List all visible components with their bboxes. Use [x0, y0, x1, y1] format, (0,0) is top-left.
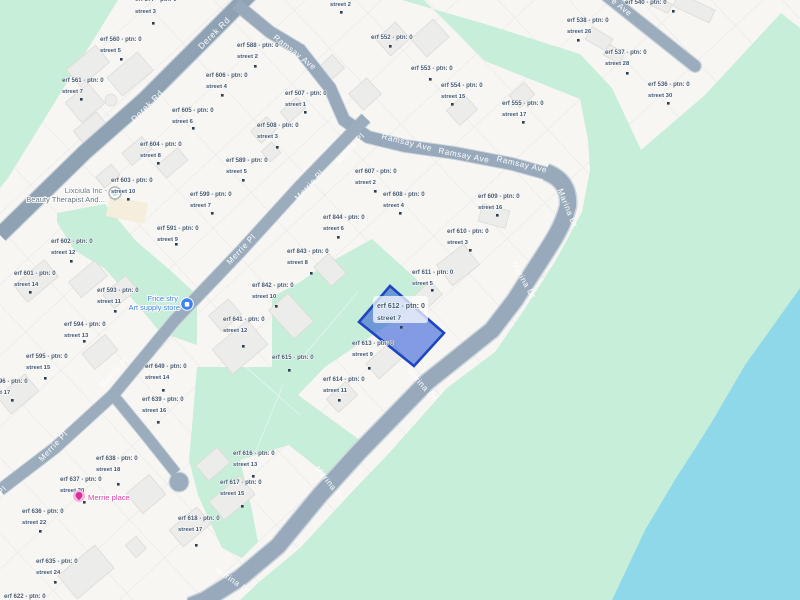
- svg-text:street 24: street 24: [36, 570, 61, 576]
- svg-text:street 9: street 9: [352, 352, 374, 358]
- svg-text:street 16: street 16: [142, 408, 167, 414]
- svg-text:erf 635 - ptn: 0: erf 635 - ptn: 0: [36, 558, 78, 565]
- svg-text:Lixciula Inc -: Lixciula Inc -: [65, 186, 108, 195]
- svg-text:erf 507 - ptn: 0: erf 507 - ptn: 0: [285, 90, 327, 97]
- svg-text:street 10: street 10: [252, 294, 277, 300]
- svg-text:erf 844 - ptn: 0: erf 844 - ptn: 0: [323, 214, 365, 221]
- svg-text:erf 614 - ptn: 0: erf 614 - ptn: 0: [323, 376, 365, 383]
- svg-text:street 12: street 12: [223, 328, 248, 334]
- svg-text:erf 603 - ptn: 0: erf 603 - ptn: 0: [111, 177, 153, 184]
- svg-text:erf 604 - ptn: 0: erf 604 - ptn: 0: [140, 141, 182, 148]
- svg-text:erf 593 - ptn: 0: erf 593 - ptn: 0: [97, 287, 139, 294]
- svg-text:erf 616 - ptn: 0: erf 616 - ptn: 0: [233, 450, 275, 457]
- svg-text:erf 612 - ptn: 0: erf 612 - ptn: 0: [377, 303, 425, 310]
- svg-text:street 8: street 8: [140, 153, 162, 159]
- svg-text:erf 611 - ptn: 0: erf 611 - ptn: 0: [412, 269, 454, 276]
- svg-text:street 5: street 5: [100, 48, 122, 54]
- svg-text:street 15: street 15: [26, 365, 51, 371]
- svg-text:erf 613 - ptn: 0: erf 613 - ptn: 0: [352, 340, 394, 347]
- svg-text:street 14: street 14: [14, 282, 39, 288]
- svg-text:erf 610 - ptn: 0: erf 610 - ptn: 0: [447, 228, 489, 235]
- svg-text:street 16: street 16: [478, 205, 503, 211]
- svg-text:street 11: street 11: [323, 388, 348, 394]
- svg-text:erf 602 - ptn: 0: erf 602 - ptn: 0: [51, 238, 93, 245]
- svg-text:street 18: street 18: [96, 467, 121, 473]
- svg-text:erf 560 - ptn: 0: erf 560 - ptn: 0: [100, 36, 142, 43]
- svg-text:street 11: street 11: [97, 299, 122, 305]
- svg-text:street 5: street 5: [412, 281, 434, 287]
- svg-text:erf 594 - ptn: 0: erf 594 - ptn: 0: [64, 321, 106, 328]
- svg-text:street 6: street 6: [323, 226, 345, 232]
- svg-text:erf 540 - ptn: 0: erf 540 - ptn: 0: [625, 0, 667, 6]
- svg-text:erf 588 - ptn: 0: erf 588 - ptn: 0: [237, 42, 279, 49]
- svg-text:erf 553 - ptn: 0: erf 553 - ptn: 0: [411, 65, 453, 72]
- svg-text:street 10: street 10: [111, 189, 136, 195]
- svg-text:Beauty Therapist And...: Beauty Therapist And...: [26, 195, 105, 204]
- svg-text:erf 842 - ptn: 0: erf 842 - ptn: 0: [252, 282, 294, 289]
- svg-text:street 8: street 8: [287, 260, 309, 266]
- svg-text:street 7: street 7: [62, 89, 84, 95]
- svg-text:erf 599 - ptn: 0: erf 599 - ptn: 0: [190, 191, 232, 198]
- svg-text:street 4: street 4: [206, 84, 228, 90]
- svg-text:street 13: street 13: [233, 462, 258, 468]
- svg-text:street 30: street 30: [648, 93, 673, 99]
- svg-text:street 9: street 9: [157, 237, 179, 243]
- svg-text:erf 615 - ptn: 0: erf 615 - ptn: 0: [272, 354, 314, 361]
- svg-text:erf 554 - ptn: 0: erf 554 - ptn: 0: [441, 82, 483, 89]
- svg-text:erf 637 - ptn: 0: erf 637 - ptn: 0: [60, 476, 102, 483]
- svg-text:street 14: street 14: [145, 375, 170, 381]
- svg-text:street 2: street 2: [355, 180, 377, 186]
- svg-text:street 28: street 28: [605, 61, 630, 67]
- svg-text:erf 649 - ptn: 0: erf 649 - ptn: 0: [145, 363, 187, 370]
- svg-text:erf 636 - ptn: 0: erf 636 - ptn: 0: [22, 508, 64, 515]
- svg-text:erf 638 - ptn: 0: erf 638 - ptn: 0: [96, 455, 138, 462]
- svg-text:erf 552 - ptn: 0: erf 552 - ptn: 0: [371, 34, 413, 41]
- svg-text:street 4: street 4: [383, 203, 405, 209]
- svg-text:erf 538 - ptn: 0: erf 538 - ptn: 0: [567, 17, 609, 24]
- svg-text:erf 577 - ptn: 0: erf 577 - ptn: 0: [135, 0, 177, 3]
- svg-text:street 15: street 15: [220, 491, 245, 497]
- svg-text:street 7: street 7: [190, 203, 212, 209]
- svg-text:erf 595 - ptn: 0: erf 595 - ptn: 0: [26, 353, 68, 360]
- svg-text:erf 536 - ptn: 0: erf 536 - ptn: 0: [648, 81, 690, 88]
- svg-text:street 5: street 5: [226, 169, 248, 175]
- svg-text:erf 508 - ptn: 0: erf 508 - ptn: 0: [257, 122, 299, 129]
- svg-text:street 26: street 26: [567, 29, 592, 35]
- svg-text:Art supply store: Art supply store: [129, 303, 180, 312]
- svg-text:erf 537 - ptn: 0: erf 537 - ptn: 0: [605, 49, 647, 56]
- svg-text:street 15: street 15: [441, 94, 466, 100]
- svg-text:erf 606 - ptn: 0: erf 606 - ptn: 0: [206, 72, 248, 79]
- svg-text:Frice.stry: Frice.stry: [148, 294, 179, 303]
- svg-text:street 13: street 13: [64, 333, 89, 339]
- svg-text:Merrie place: Merrie place: [88, 493, 130, 502]
- svg-text:street 22: street 22: [22, 520, 47, 526]
- svg-text:street 3: street 3: [447, 240, 469, 246]
- svg-text:street 1: street 1: [285, 102, 307, 108]
- svg-text:street 2: street 2: [237, 54, 259, 60]
- svg-text:erf 622 - ptn: 0: erf 622 - ptn: 0: [4, 593, 46, 600]
- svg-text:erf 589 - ptn: 0: erf 589 - ptn: 0: [226, 157, 268, 164]
- svg-text:street 3: street 3: [257, 134, 279, 140]
- svg-text:erf 608 - ptn: 0: erf 608 - ptn: 0: [383, 191, 425, 198]
- svg-text:erf 596 - ptn: 0: erf 596 - ptn: 0: [0, 378, 28, 385]
- svg-text:street 17: street 17: [502, 112, 527, 118]
- svg-text:street 17: street 17: [0, 390, 11, 396]
- svg-text:street 12: street 12: [51, 250, 76, 256]
- svg-text:erf 641 - ptn: 0: erf 641 - ptn: 0: [223, 316, 265, 323]
- svg-text:street 17: street 17: [178, 527, 203, 533]
- svg-text:erf 605 - ptn: 0: erf 605 - ptn: 0: [172, 107, 214, 114]
- svg-text:erf 843 - ptn: 0: erf 843 - ptn: 0: [287, 248, 329, 255]
- svg-text:erf 609 - ptn: 0: erf 609 - ptn: 0: [478, 193, 520, 200]
- svg-text:erf 607 - ptn: 0: erf 607 - ptn: 0: [355, 168, 397, 175]
- svg-text:street 7: street 7: [377, 315, 401, 322]
- svg-text:erf 561 - ptn: 0: erf 561 - ptn: 0: [62, 77, 104, 84]
- svg-text:street 2: street 2: [330, 2, 352, 8]
- svg-text:erf 591 - ptn: 0: erf 591 - ptn: 0: [157, 225, 199, 232]
- svg-text:erf 601 - ptn: 0: erf 601 - ptn: 0: [14, 270, 56, 277]
- svg-text:erf 618 - ptn: 0: erf 618 - ptn: 0: [178, 515, 220, 522]
- svg-text:erf 617 - ptn: 0: erf 617 - ptn: 0: [220, 479, 262, 486]
- svg-text:erf 639 - ptn: 0: erf 639 - ptn: 0: [142, 396, 184, 403]
- svg-text:street 3: street 3: [135, 9, 157, 15]
- svg-text:street 6: street 6: [172, 119, 194, 125]
- svg-text:erf 555 - ptn: 0: erf 555 - ptn: 0: [502, 100, 544, 107]
